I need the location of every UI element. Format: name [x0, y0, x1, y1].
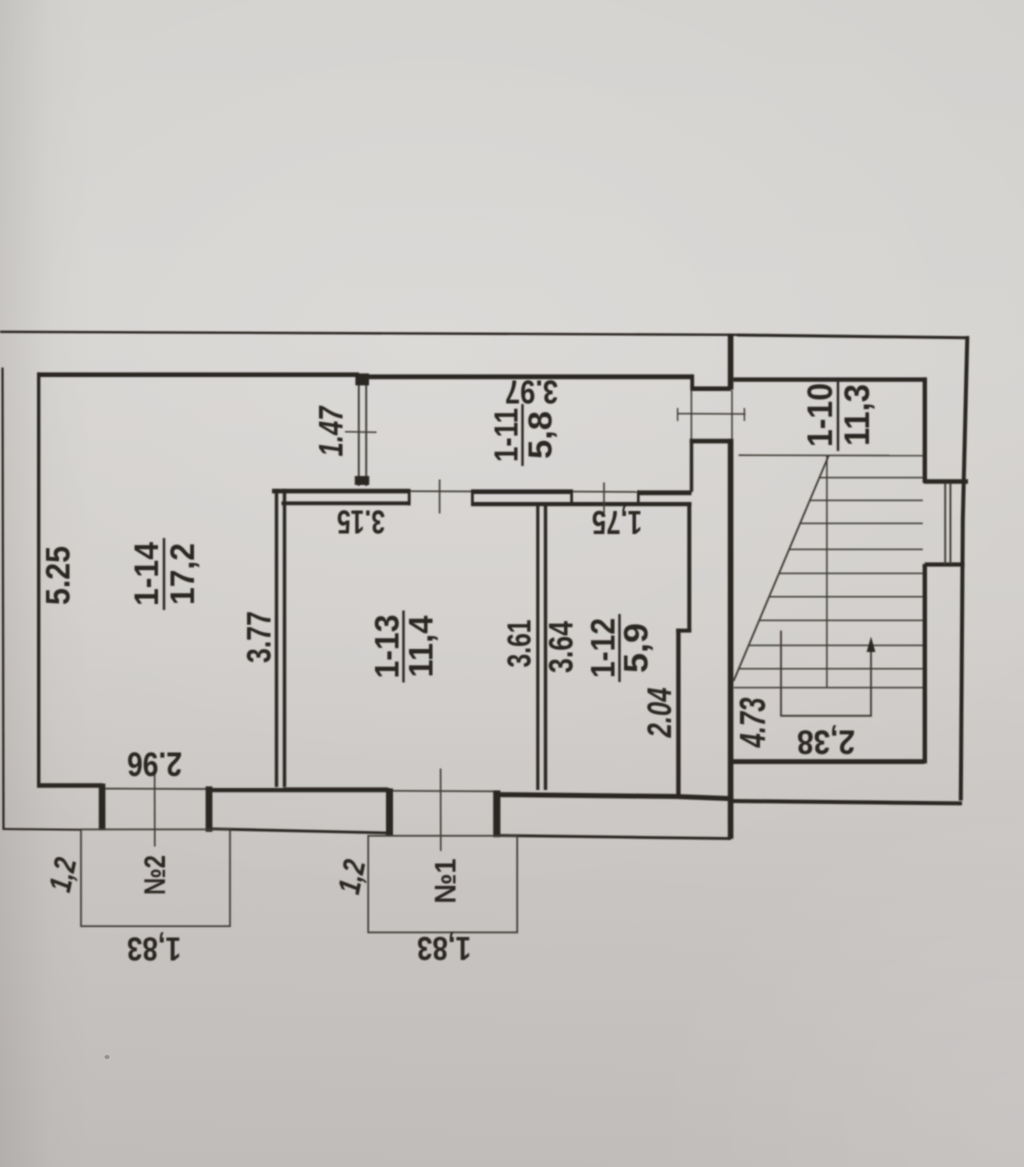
svg-text:3.97: 3.97	[505, 374, 558, 411]
svg-text:№1: №1	[430, 859, 463, 904]
svg-text:17,2: 17,2	[164, 543, 202, 605]
svg-text:4.73: 4.73	[732, 698, 773, 749]
svg-text:1,75: 1,75	[592, 504, 642, 541]
svg-text:3.64: 3.64	[543, 621, 581, 673]
svg-text:1,83: 1,83	[417, 930, 471, 967]
svg-text:2.04: 2.04	[641, 687, 679, 738]
svg-text:1-14: 1-14	[128, 542, 166, 606]
svg-text:1,83: 1,83	[127, 931, 181, 968]
svg-text:11,3: 11,3	[838, 384, 877, 446]
svg-text:3.15: 3.15	[337, 504, 385, 541]
svg-text:№2: №2	[139, 855, 172, 895]
svg-text:3.77: 3.77	[241, 611, 279, 663]
svg-text:1-13: 1-13	[369, 615, 407, 679]
svg-text:5,9: 5,9	[618, 623, 656, 673]
svg-text:2,38: 2,38	[797, 723, 855, 761]
svg-text:5,8: 5,8	[522, 411, 559, 459]
svg-text:3.61: 3.61	[501, 620, 538, 668]
svg-text:1,2: 1,2	[42, 855, 83, 896]
svg-text:1.47: 1.47	[313, 405, 351, 457]
svg-text:1-11: 1-11	[488, 408, 525, 462]
svg-text:1,2: 1,2	[331, 857, 372, 898]
svg-text:5.25: 5.25	[40, 546, 78, 605]
svg-text:1-10: 1-10	[801, 383, 840, 447]
svg-text:11,4: 11,4	[403, 615, 441, 677]
svg-text:2.96: 2.96	[127, 745, 182, 783]
